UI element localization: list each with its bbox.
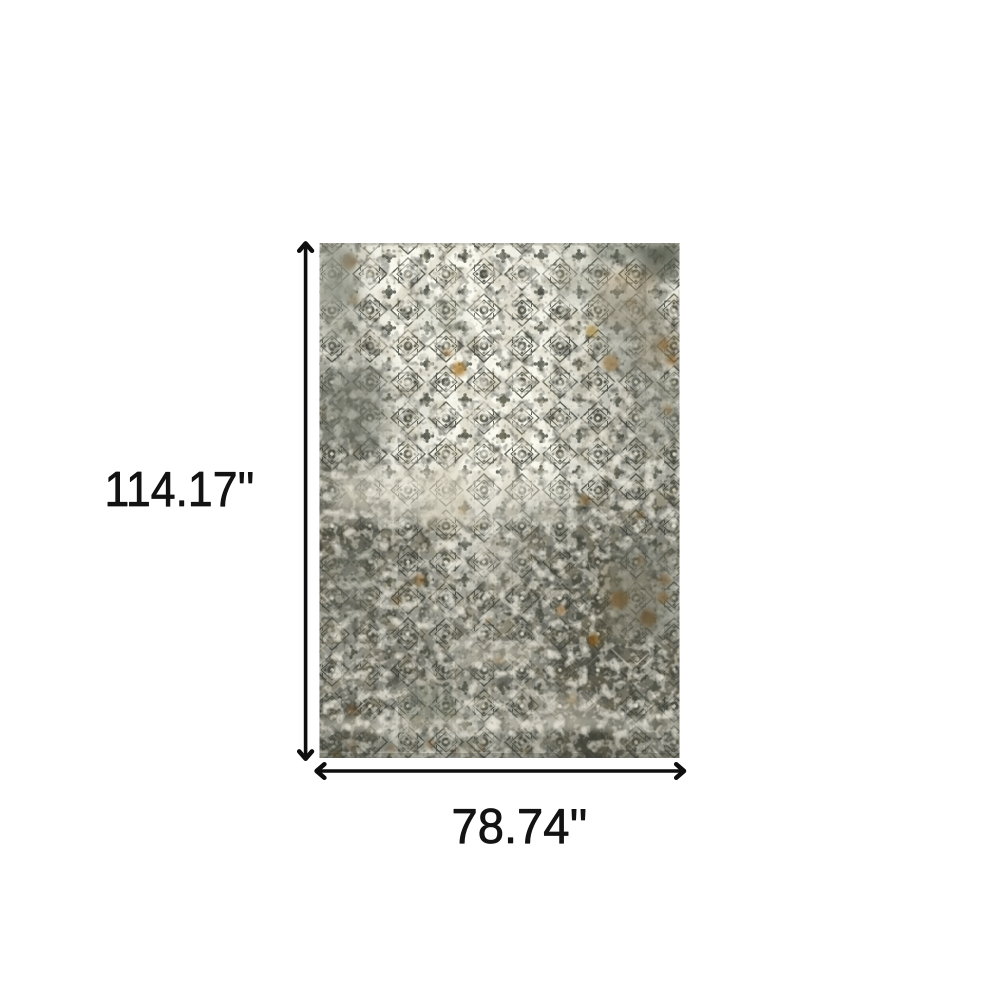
svg-text:114.17'': 114.17'' xyxy=(105,462,255,517)
svg-text:78.74'': 78.74'' xyxy=(452,799,588,854)
